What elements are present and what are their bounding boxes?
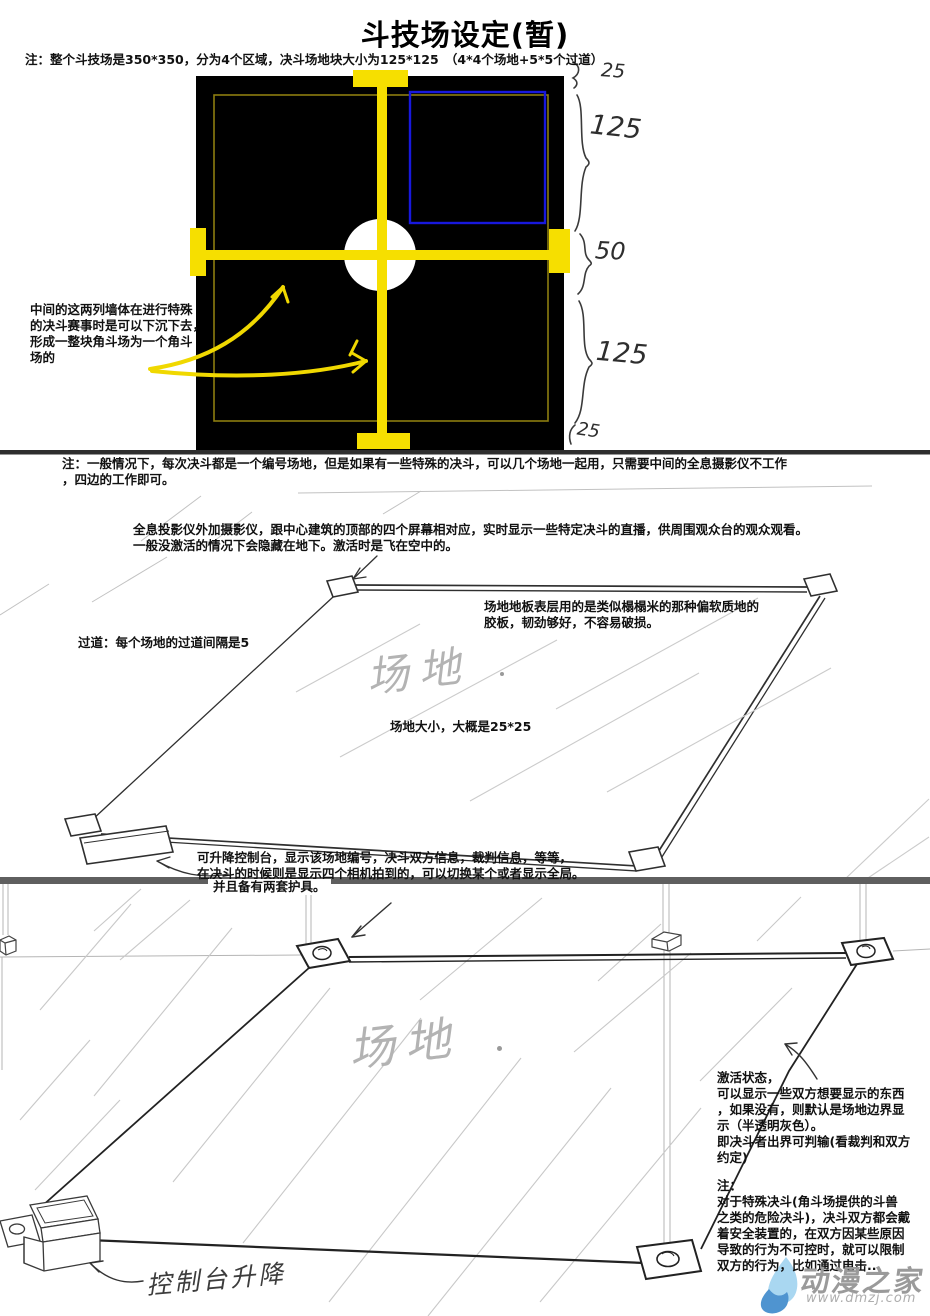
pointer-arrows-bottom <box>90 903 817 1282</box>
page-title: 斗技场设定(暂) <box>0 12 930 54</box>
dimension-label: 125 <box>595 336 649 371</box>
field-handwritten-label: 场地 <box>344 1001 463 1080</box>
console-note: 可升降控制台，显示该场地编号，决斗双方信息，裁判信息，等等， 在决斗的时候则是显… <box>197 850 585 882</box>
section-divider-1 <box>0 450 930 455</box>
projector-pod-left <box>297 939 350 968</box>
lift-console-3d <box>0 1196 100 1271</box>
dimension-braces <box>570 62 592 444</box>
design-sheet: 斗技场设定(暂) 注：整个斗技场是350*350，分为4个区域，决斗场地块大小为… <box>0 0 930 1316</box>
left-edge-cube <box>0 936 16 955</box>
hologram-note: 全息投影仪外加摄影仪，跟中心建筑的顶部的四个屏幕相对应，实时显示一些特定决斗的直… <box>133 522 808 554</box>
top-beam <box>349 953 846 962</box>
aisle-note: 过道：每个场地的过道间隔是5 <box>78 635 249 651</box>
projector-pad-bottom-left <box>65 814 101 836</box>
console-note-2: 并且备有两套护具。 <box>208 879 331 895</box>
projector-pad-top-right <box>804 574 837 596</box>
floor-material-note: 场地地板表层用的是类似榻榻米的那种偏软质地的 胶板，韧劲够好，不容易破损。 <box>484 599 759 631</box>
dimension-label: 25 <box>576 419 602 443</box>
wall-sink-note: 中间的这两列墙体在进行特殊 的决斗赛事时是可以下沉下去， 形成一整块角斗场为一个… <box>30 302 205 366</box>
top-note: 注：整个斗技场是350*350，分为4个区域，决斗场地块大小为125*125 （… <box>25 52 603 68</box>
pointer-arrows <box>157 556 377 876</box>
general-note: 注：一般情况下，每次决斗都是一个编号场地，但是如果有一些特殊的决斗，可以几个场地… <box>62 456 787 488</box>
arena-top-view <box>150 62 592 450</box>
handwritten-dot <box>500 672 504 676</box>
dimension-label: 25 <box>600 59 626 83</box>
projector-pad-bottom-right <box>629 847 665 871</box>
beam-cube <box>652 932 681 951</box>
handwritten-dot <box>497 1046 502 1051</box>
dimension-label: 125 <box>589 109 644 145</box>
watermark-url: www.dmzj.com <box>806 1291 916 1306</box>
field-size-note: 场地大小，大概是25*25 <box>390 719 531 735</box>
projector-pod-bottom-right <box>637 1240 701 1279</box>
projector-pod-right <box>842 938 893 965</box>
activation-note: 激活状态， 可以显示一些双方想要显示的东西 ，如果没有，则默认是场地边界显 示（… <box>717 1070 930 1166</box>
dimension-label: 50 <box>594 236 626 266</box>
field-handwritten-label: 场地 <box>363 632 474 705</box>
